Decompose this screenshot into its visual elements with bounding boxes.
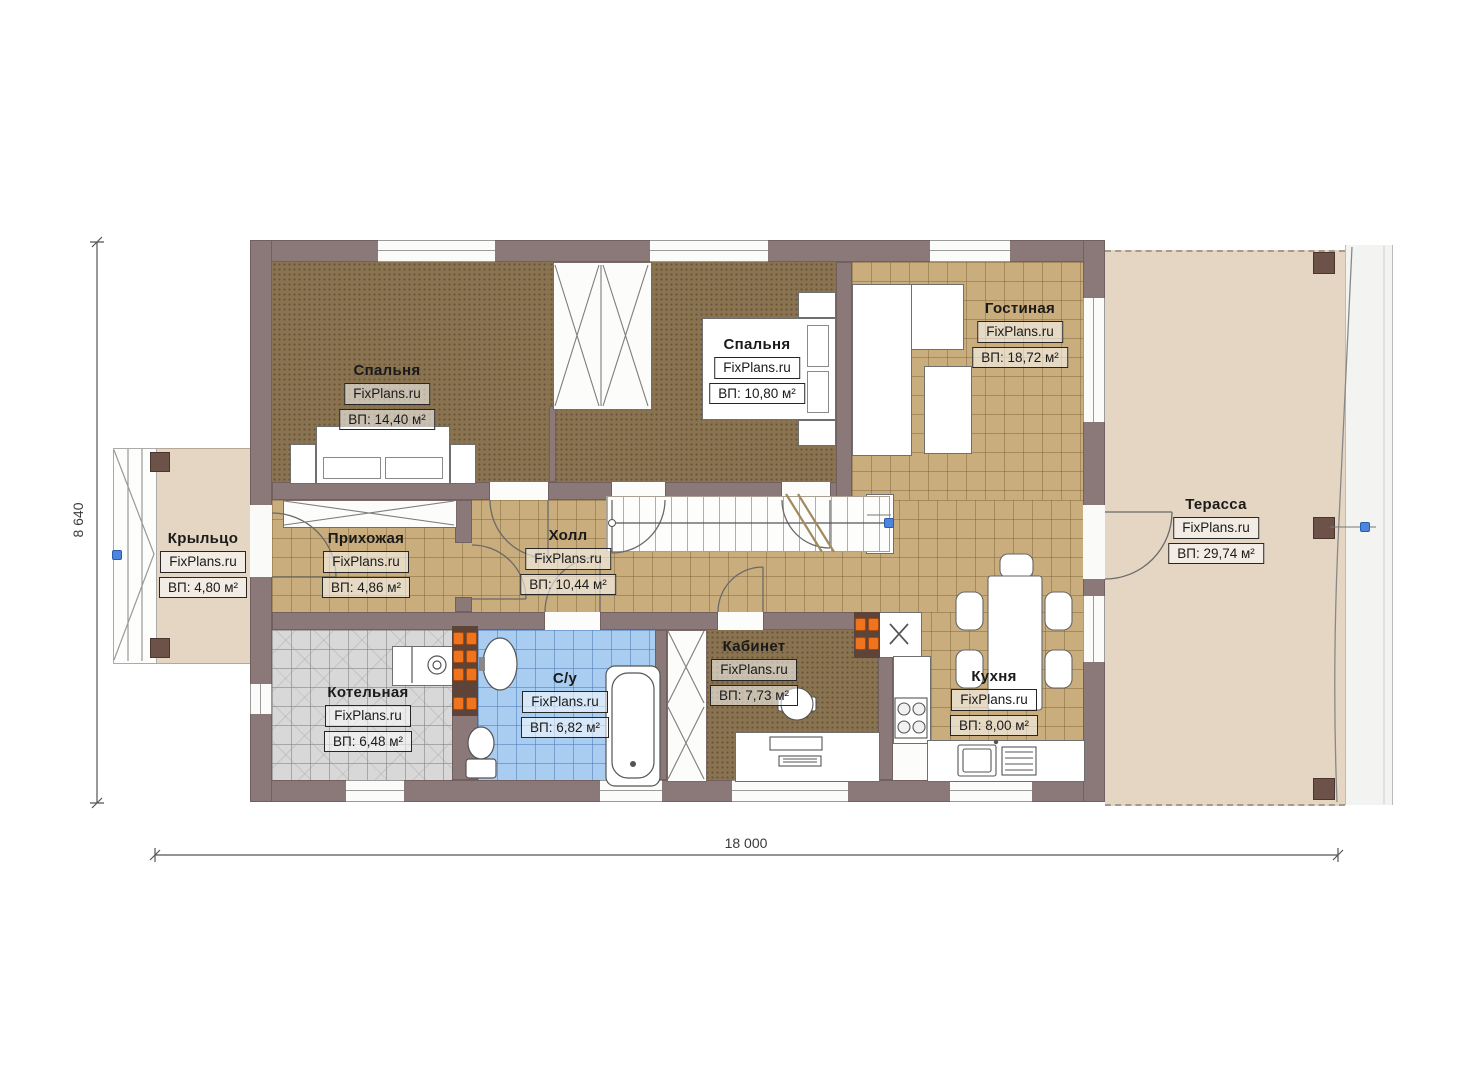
- watermark: FixPlans.ru: [711, 659, 797, 681]
- room-name: Прихожая: [328, 530, 404, 547]
- room-label-hallway: Прихожая FixPlans.ru ВП: 4,86 м²: [322, 530, 410, 598]
- nightstand: [290, 444, 316, 484]
- axis-marker: [884, 518, 894, 528]
- terrace-post: [1313, 517, 1335, 539]
- pillow: [385, 457, 443, 479]
- floor-plan: Спальня FixPlans.ru ВП: 14,40 м² Спальня…: [0, 0, 1474, 1080]
- dimension-height: 8 640: [70, 480, 86, 560]
- window: [346, 780, 404, 802]
- window: [600, 780, 662, 802]
- window: [1083, 596, 1105, 662]
- room-area: ВП: 10,44 м²: [520, 574, 616, 596]
- terrace-post: [1313, 778, 1335, 800]
- window: [1083, 298, 1105, 422]
- wardrobe: [553, 262, 652, 410]
- bed: [316, 426, 450, 484]
- porch-post: [150, 452, 170, 472]
- room-label-boiler-room: Котельная FixPlans.ru ВП: 6,48 м²: [324, 684, 412, 752]
- nightstand: [450, 444, 476, 484]
- pillow: [807, 325, 829, 367]
- window: [930, 240, 1010, 262]
- room-name: С/у: [553, 670, 577, 687]
- radiator-icon: [453, 668, 477, 679]
- room-label-office: Кабинет FixPlans.ru ВП: 7,73 м²: [710, 638, 798, 706]
- room-area: ВП: 8,00 м²: [950, 715, 1038, 737]
- water-heater: [878, 612, 922, 658]
- room-area: ВП: 10,80 м²: [709, 383, 805, 405]
- room-label-kitchen: Кухня FixPlans.ru ВП: 8,00 м²: [950, 668, 1038, 736]
- room-name: Кухня: [971, 668, 1016, 685]
- room-area: ВП: 14,40 м²: [339, 409, 435, 431]
- wall-inner: [836, 262, 852, 500]
- kitchen-counter: [927, 740, 1085, 782]
- room-area: ВП: 7,73 м²: [710, 685, 798, 707]
- watermark: FixPlans.ru: [525, 548, 611, 570]
- sofa: [852, 284, 912, 456]
- wall-inner: [655, 630, 667, 780]
- room-name: Крыльцо: [168, 530, 238, 547]
- window: [650, 240, 768, 262]
- room-name: Спальня: [724, 336, 791, 353]
- room-area: ВП: 6,48 м²: [324, 731, 412, 753]
- pillow: [807, 371, 829, 413]
- terrace-post: [1313, 252, 1335, 274]
- boiler-unit: [392, 646, 460, 686]
- room-area: ВП: 6,82 м²: [521, 717, 609, 739]
- room-area: ВП: 4,80 м²: [159, 577, 247, 599]
- radiator-icon: [453, 632, 477, 643]
- room-label-terrace: Терасса FixPlans.ru ВП: 29,74 м²: [1168, 496, 1264, 564]
- window: [378, 240, 495, 262]
- terrace-door-opening: [1083, 505, 1105, 579]
- watermark: FixPlans.ru: [325, 705, 411, 727]
- kitchen-counter: [893, 656, 931, 744]
- room-name: Холл: [549, 527, 588, 544]
- wall-inner: [548, 482, 612, 500]
- wall-inner: [455, 500, 472, 543]
- nightstand: [798, 420, 836, 446]
- axis-marker: [1360, 522, 1370, 532]
- nightstand: [798, 292, 836, 318]
- radiator-icon: [453, 697, 477, 708]
- room-label-bedroom-2: Спальня FixPlans.ru ВП: 10,80 м²: [709, 336, 805, 404]
- watermark: FixPlans.ru: [344, 383, 430, 405]
- watermark: FixPlans.ru: [1173, 517, 1259, 539]
- room-area: ВП: 29,74 м²: [1168, 543, 1264, 565]
- room-area: ВП: 4,86 м²: [322, 577, 410, 599]
- room-label-hall: Холл FixPlans.ru ВП: 10,44 м²: [520, 527, 616, 595]
- watermark: FixPlans.ru: [714, 357, 800, 379]
- room-name: Гостиная: [985, 300, 1055, 317]
- watermark: FixPlans.ru: [951, 689, 1037, 711]
- room-name: Котельная: [327, 684, 408, 701]
- wall-inner: [878, 656, 893, 780]
- watermark: FixPlans.ru: [323, 551, 409, 573]
- staircase: [606, 496, 890, 552]
- window: [732, 780, 848, 802]
- wall-inner: [272, 482, 490, 500]
- window: [950, 780, 1032, 802]
- wall-inner: [549, 406, 556, 482]
- room-label-porch: Крыльцо FixPlans.ru ВП: 4,80 м²: [159, 530, 247, 598]
- coffee-table: [924, 366, 972, 454]
- room-name: Кабинет: [723, 638, 786, 655]
- entrance-door-opening: [250, 505, 272, 577]
- wall-inner: [455, 597, 472, 612]
- room-name: Спальня: [354, 362, 421, 379]
- room-label-living-room: Гостиная FixPlans.ru ВП: 18,72 м²: [972, 300, 1068, 368]
- desk: [735, 732, 880, 782]
- pillow: [323, 457, 381, 479]
- radiator-icon: [855, 637, 879, 648]
- radiator-icon: [453, 650, 477, 661]
- watermark: FixPlans.ru: [522, 691, 608, 713]
- wall-inner: [600, 612, 718, 630]
- watermark: FixPlans.ru: [977, 321, 1063, 343]
- watermark: FixPlans.ru: [160, 551, 246, 573]
- hallway-wardrobe: [283, 500, 457, 528]
- dimension-width: 18 000: [700, 835, 792, 851]
- window: [250, 684, 272, 714]
- axis-marker: [112, 550, 122, 560]
- room-label-bedroom-1: Спальня FixPlans.ru ВП: 14,40 м²: [339, 362, 435, 430]
- radiator-icon: [855, 618, 879, 629]
- room-name: Терасса: [1185, 496, 1247, 513]
- office-wardrobe: [667, 630, 707, 782]
- wall-inner: [272, 612, 545, 630]
- porch-post: [150, 638, 170, 658]
- room-area: ВП: 18,72 м²: [972, 347, 1068, 369]
- room-label-bathroom: С/у FixPlans.ru ВП: 6,82 м²: [521, 670, 609, 738]
